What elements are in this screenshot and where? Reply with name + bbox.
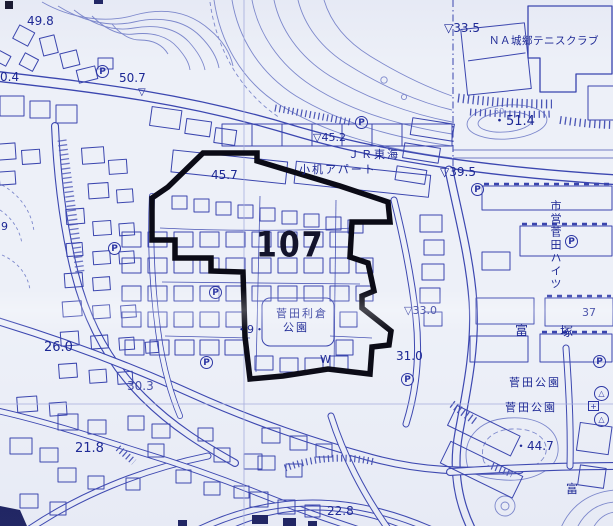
tennis-club-label: ＮＡ城郷テニスクラブ [489, 36, 599, 47]
elevation-22-8: 22.8 [327, 505, 354, 517]
jr-tokai-label: ＪＲ東海 [348, 149, 400, 160]
elevation-51-4: ・51.4 [493, 115, 535, 128]
elevation-50-7: 50.7 [119, 72, 146, 84]
spot-9-mark: ・9・ [236, 324, 265, 335]
parking-icon: P [200, 356, 213, 369]
elevation-44-7: ・44.7 [515, 440, 554, 452]
benchmark-icon: ▽ [138, 88, 146, 98]
benchmark-33-0: ▽33.0 [404, 305, 437, 316]
toshikura-park-label-line1: 菅田利倉 [276, 308, 328, 319]
benchmark-45-2: ▽45.2 [313, 132, 346, 143]
plus-mark-icon: + [588, 401, 599, 411]
elevation-49-8: 49.8 [27, 15, 54, 27]
sugeta-park-label-lower: 菅田公園 [505, 402, 557, 413]
spot-9-left-edge: 9 [1, 221, 8, 232]
blueprint-city-map: 49.8 0.4 50.7 ▽ ▽45.2 ＪＲ東海 小机アパート 45.7 ▽… [0, 0, 613, 526]
elevation-37: 37 [582, 307, 596, 318]
parking-icon: P [401, 373, 414, 386]
parking-icon: P [209, 286, 222, 299]
parking-icon: P [565, 235, 578, 248]
parking-icon: P [355, 116, 368, 129]
parking-icon: P [593, 355, 606, 368]
toshikura-park-label-line2: 公園 [283, 322, 309, 333]
elevation-31-0: 31.0 [396, 350, 423, 362]
tomi-character-lower: 富 [566, 483, 578, 495]
sugeta-park-label-upper: 菅田公園 [509, 377, 561, 388]
tsuka-character: 塚 [560, 326, 573, 339]
parking-icon: P [108, 242, 121, 255]
monument-icon: △ [594, 412, 609, 427]
elevation-21-8: 21.8 [75, 442, 104, 455]
elevation-30-3: 30.3 [127, 380, 154, 392]
elevation-50-4-partial: 0.4 [0, 71, 19, 83]
kozukue-apartment-label: 小机アパート [299, 164, 377, 175]
tomi-character: 富 [515, 325, 528, 338]
monument-icon: △ [594, 386, 609, 401]
benchmark-39-5: ▽39.5 [440, 166, 476, 178]
elevation-26-0: 26.0 [44, 341, 73, 354]
w-mark: W [320, 354, 331, 365]
shiei-sugeta-heights-label: 市営菅田ハイツ [550, 200, 561, 291]
parking-icon: P [96, 65, 109, 78]
district-number-107: 107 [256, 225, 325, 265]
corner-square-mark [5, 1, 13, 9]
elevation-45-7: 45.7 [211, 169, 238, 181]
benchmark-33-5: ▽33.5 [444, 22, 480, 34]
parking-icon: P [471, 183, 484, 196]
